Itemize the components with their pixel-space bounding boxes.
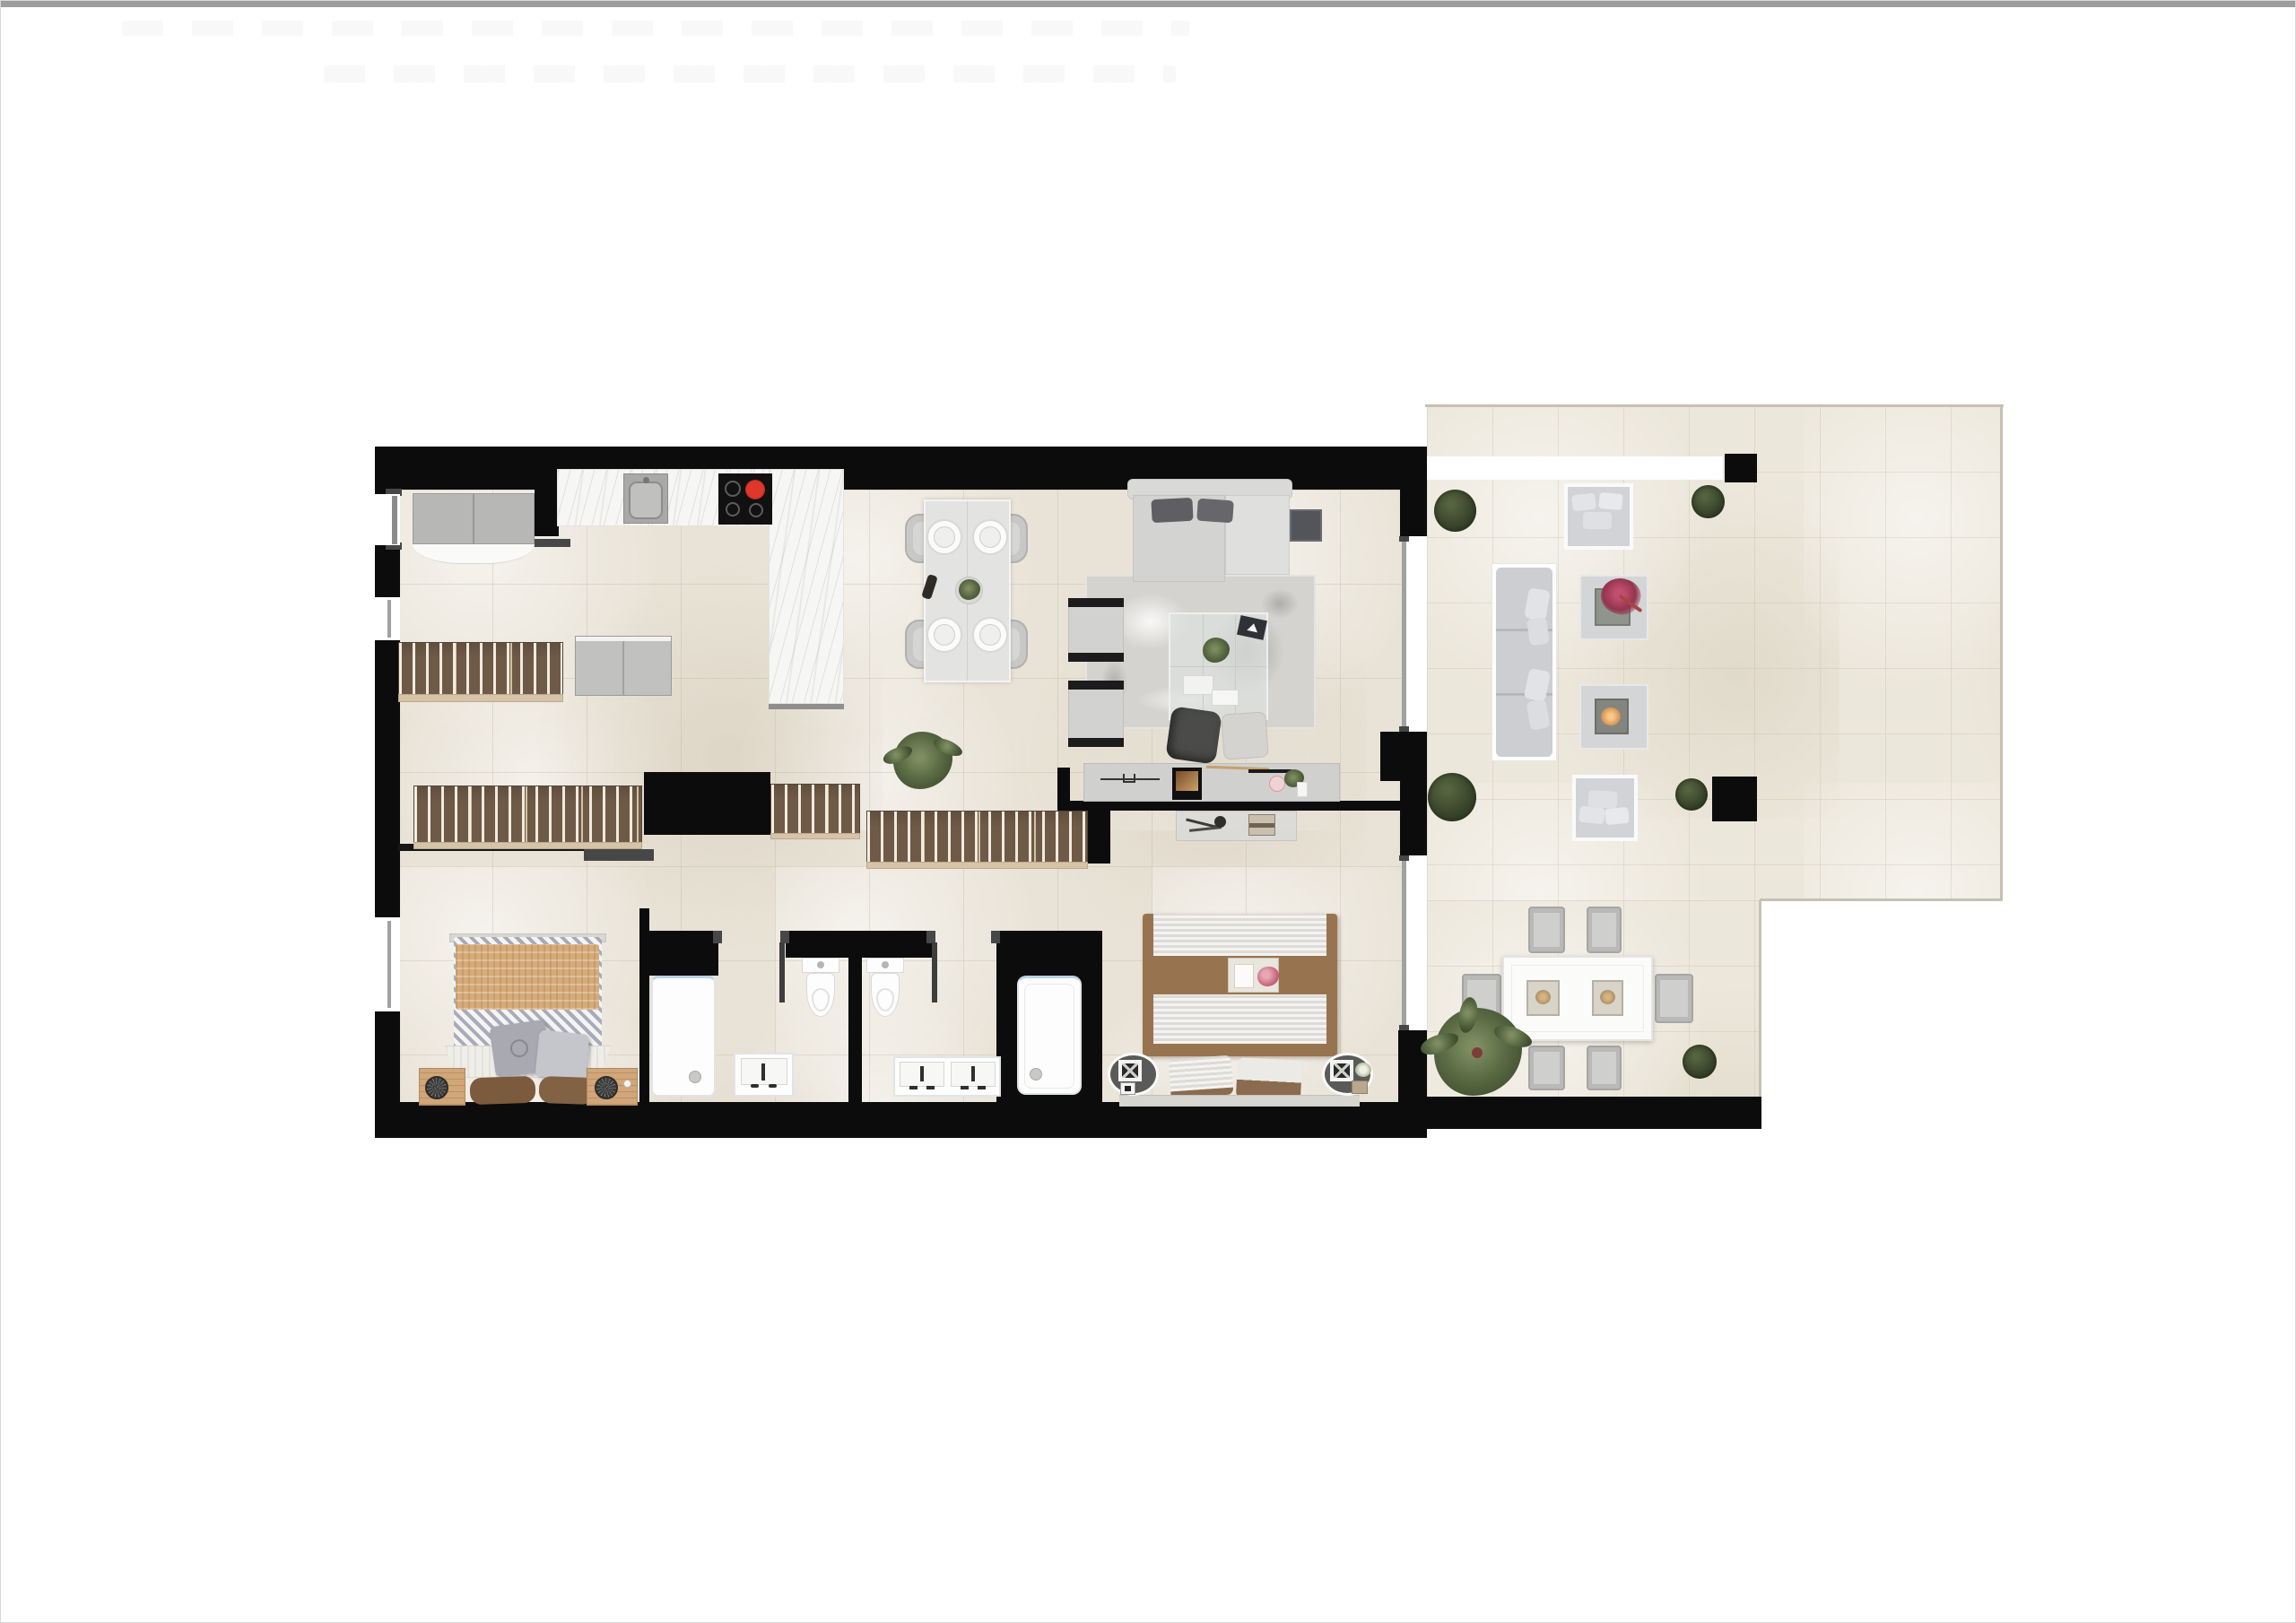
bench-parcel [1248,814,1275,836]
tv-screen [1172,768,1202,800]
faded-header-row-1 [122,21,1189,36]
window-hall-glass [387,600,391,638]
wall-right-step [1380,732,1427,781]
burner-icon-2 [726,502,740,516]
tv-sideboard [1083,763,1340,802]
bed1-pillow-light [535,1029,589,1081]
fire-glow-icon [1601,707,1621,725]
terrace-pillar-mid [1712,777,1757,821]
wall-hall-block [644,772,770,835]
bath1-vanity [734,1053,794,1097]
place-setting-2 [972,519,1008,555]
jamb-bath2-r [991,931,1000,943]
master-bed-sheet-top [1153,914,1326,956]
book-logo-icon [1247,622,1259,632]
lounge-armchair-top [1564,483,1633,550]
toilet-1 [802,958,839,1017]
burner-red-icon [745,480,765,499]
oval-right-box [1352,1081,1368,1094]
nightstand-right [587,1068,638,1106]
armchair-top-cushion-3 [1583,512,1612,529]
master-slider-frame-t [1399,855,1409,861]
kitchen-sink [623,473,668,524]
master-slider-glass [1402,855,1406,1030]
armchair-bottom-cushion-3 [1588,790,1618,809]
nightstand-right-fan-icon [595,1076,618,1099]
jamb-bath2-l [926,931,935,943]
hall-cabinet [575,636,672,696]
outdoor-chair-bottom-1 [1528,1046,1565,1090]
entry-wardrobe-base [398,694,563,702]
floor-plan-page [0,0,2296,1623]
bath2-door-leaf [932,942,937,1002]
hedge-top-right [1692,485,1725,518]
wall-right-bottom [1398,1030,1427,1102]
shower-drain-icon [689,1071,701,1083]
sofa-side-table [1290,509,1322,542]
toilet1-seat [812,988,830,1011]
kitchen-island-shadow [769,704,844,709]
nightstand-left-fan-icon [425,1076,448,1099]
master-oval-rug-left [1108,1053,1159,1096]
nightstand-left [419,1068,465,1106]
master-pillow-1 [1169,1055,1234,1099]
pouf-light [1221,711,1268,759]
armchair-2-frame-top [1068,681,1124,690]
tv-picture [1176,771,1198,791]
armchair-1 [1068,598,1124,662]
wall-right-top [1400,490,1427,536]
wall-entry-pier [535,447,559,536]
sideboard-black-bar [1248,769,1291,773]
lounge-table-firepit [1579,684,1648,750]
lantern-2 [1592,980,1623,1016]
sofa-pillow-2 [1196,499,1234,524]
hedge-dining [1683,1045,1717,1079]
terrace-border-top [1425,404,2004,407]
tray-book [1234,964,1254,988]
bathtub-drain-icon [1030,1068,1042,1081]
bedroom1-door-leaf [584,849,654,861]
living-slider-frame-b [1399,726,1409,732]
armchair-2-frame-bottom [1068,738,1124,747]
armchair-top-cushion-2 [1598,492,1622,510]
lantern-2-glow [1600,990,1615,1004]
jamb-bath1-r [780,931,789,943]
entry-cabinet [413,493,535,544]
wall-left-a [375,447,400,494]
master-slider-frame-b [1399,1025,1409,1030]
toilet2-seat [876,988,894,1011]
master-bed-tray [1228,958,1279,993]
sofa-pillow-1 [1151,498,1193,523]
bathtub [1017,976,1082,1095]
toilet1-bowl [806,973,835,1017]
armchair-bottom-cushion-1 [1578,806,1605,825]
wall-corridor-stub [1057,768,1070,811]
bath1-faucet-icon [761,1063,765,1081]
kitchen-island [769,469,844,704]
shower-tray [651,976,716,1097]
living-slider-frame-t [1399,536,1409,542]
armchair-1-frame-top [1068,598,1124,607]
hedge-top-left [1434,490,1476,532]
hall-cabinet-divider [622,641,624,695]
wall-left-c [375,640,400,917]
lounge-table-flowers [1579,575,1648,640]
armchair-2 [1068,681,1124,747]
outdoor-chair-top-2 [1587,907,1622,953]
master-bench [1176,811,1297,841]
burner-icon-3 [749,503,763,517]
lounge-sofa-pillow-2 [1526,617,1550,647]
sink-faucet [643,477,649,483]
entry-wardrobe-slats [398,642,563,696]
bath2-faucet-1 [920,1066,924,1081]
place-setting-4 [972,617,1008,653]
master-bed-sheet-bottom [1153,994,1326,1044]
terrace-planter-band [1427,456,1723,480]
wall-between-baths [848,958,862,1102]
oval-left-art [1118,1060,1142,1081]
hall-wardrobe-a [413,785,642,844]
armchair-1-frame-bottom [1068,653,1124,662]
bed1-cushion-brown-1 [469,1076,535,1106]
oval-left-photo [1120,1082,1135,1095]
armchair-bottom-cushion-2 [1605,807,1629,825]
wall-bath-top [786,931,934,958]
outdoor-dining-table [1502,956,1653,1041]
bath1-handle-r [769,1084,777,1088]
toilet1-button [817,961,824,968]
coffee-table-grid-h [1170,666,1266,667]
outdoor-chair-top-1 [1528,907,1565,953]
tray-flowers [1257,967,1279,986]
armchair-top-cushion-1 [1571,493,1596,512]
nightstand-right-cup [623,1080,631,1088]
outdoor-chair-bottom-2 [1587,1046,1622,1090]
oval-right-flowers [1355,1063,1371,1077]
window-bedroom1-glass [387,921,391,1008]
wall-left-b [375,545,400,597]
lounge-sofa [1492,563,1557,761]
bath2-handles-1 [909,1086,935,1089]
hall-wardrobe-c-base [866,862,1088,869]
faded-header-row-2 [324,65,1176,82]
coffee-table-card-1 [1183,675,1213,695]
living-slider-glass [1402,536,1406,732]
sideboard-handle-bracket [1123,774,1135,783]
bath2-faucet-2 [971,1066,975,1081]
lounge-armchair-bottom [1572,775,1638,841]
hall-wardrobe-a-base [413,842,642,849]
sideboard-vase [1297,782,1308,797]
burner-icon-1 [725,481,741,497]
terrace-wall-bottom [1427,1097,1761,1129]
entry-door-leaf [392,496,397,544]
lantern-1 [1526,980,1560,1016]
cooktop [718,473,772,525]
oval-right-art [1330,1060,1353,1081]
terrace-border-bottom-right [1760,898,2003,901]
jamb-bath1-l [713,931,722,943]
sideboard-pink-plate [1269,776,1285,792]
sofa-seat-right [1225,495,1290,575]
wall-right-mid [1400,781,1427,855]
hall-wardrobe-c [866,811,1088,864]
coffee-table-card-2 [1212,690,1239,706]
bath2-handles-2 [961,1086,986,1089]
toilet2-bowl [871,973,900,1017]
hall-wardrobe-b [770,784,860,835]
wall-master-left-stub [1088,808,1110,864]
entry-cabinet-divider [473,494,474,543]
hall-wardrobe-b-base [770,833,860,839]
lantern-1-glow [1535,990,1551,1004]
toilet-2 [866,958,904,1017]
outdoor-chair-right [1655,974,1693,1023]
bench-grinder [1214,816,1226,828]
large-plant-core [1472,1047,1483,1058]
hedge-mid-left [1428,773,1476,821]
bath1-door-leaf [779,942,785,1002]
parcel-band [1249,823,1274,828]
place-setting-1 [926,519,962,555]
terrace-border-lower-right [1759,900,1761,1102]
master-headboard [1119,1095,1360,1107]
wall-bottom [375,1102,1427,1138]
master-oval-rug-right [1322,1053,1373,1096]
wall-master-top [1070,801,1427,811]
toilet2-button [882,961,889,968]
wall-shower-niche [648,931,718,976]
sink-basin [629,482,663,519]
pillow-logo-icon [509,1038,530,1059]
terrace-pillar-top [1725,454,1757,482]
pouf-dark [1165,706,1222,764]
hedge-mid-right [1675,778,1708,811]
bath1-handle-l [751,1084,759,1088]
terrace-border-right [2000,404,2003,901]
window-top-bar [1,1,2296,7]
bath2-double-vanity [893,1056,1001,1097]
place-setting-3 [926,617,962,653]
bed1-tan-blanket [456,944,599,1010]
